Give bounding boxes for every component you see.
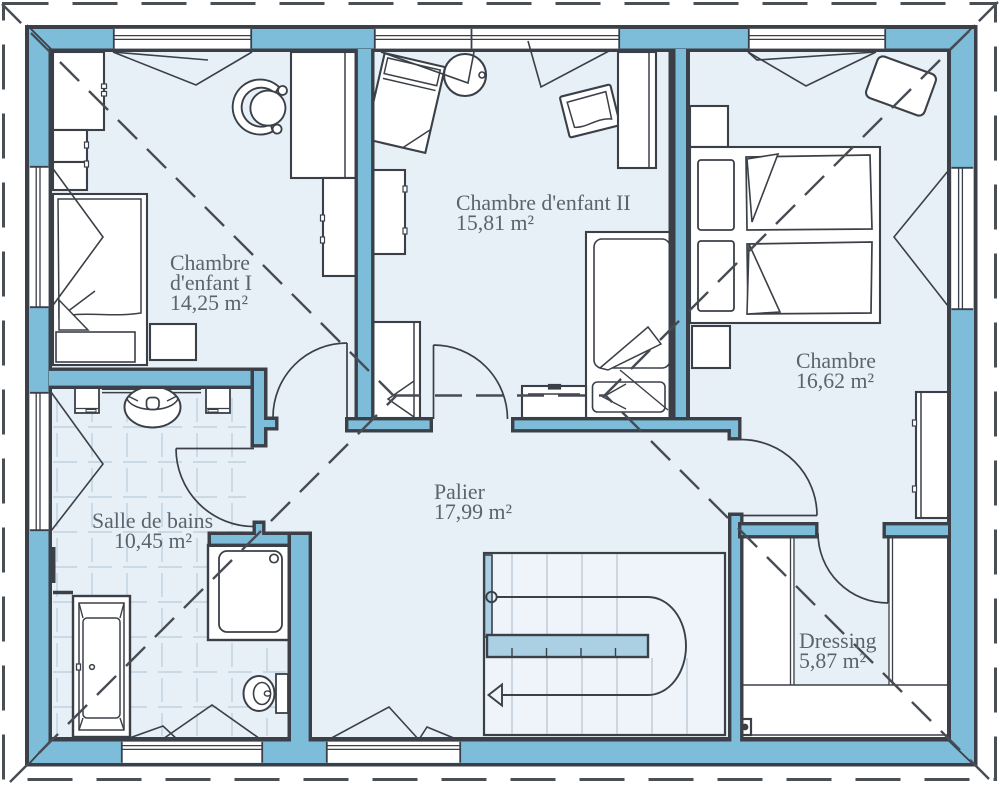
svg-text:14,25 m²: 14,25 m²	[170, 291, 248, 315]
svg-text:16,62 m²: 16,62 m²	[796, 369, 874, 393]
svg-text:15,81 m²: 15,81 m²	[456, 211, 534, 235]
svg-text:17,99 m²: 17,99 m²	[434, 500, 512, 524]
svg-text:5,87 m²: 5,87 m²	[799, 649, 867, 673]
svg-text:10,45 m²: 10,45 m²	[114, 529, 192, 553]
